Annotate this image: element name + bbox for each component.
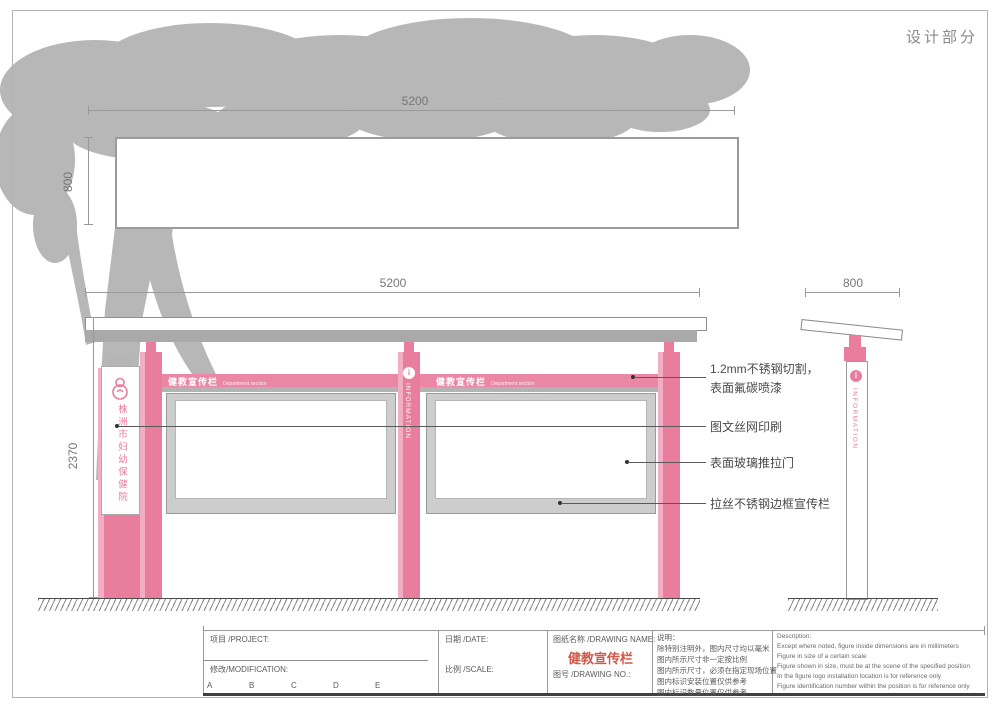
dimension-label-side-width: 800 (823, 276, 883, 290)
revision-letter-e: E (375, 681, 380, 690)
board-header-strip-1 (162, 387, 398, 392)
board-header-strip-2 (420, 387, 658, 392)
scale-label: 比例 /SCALE: (445, 664, 494, 675)
modification-rule (203, 660, 428, 661)
callout-glass-door: 表面玻璃推拉门 (710, 454, 794, 473)
banner-board (115, 137, 739, 229)
dimension-line-front-height (93, 317, 94, 598)
drawing-name-label: 图纸名称 /DRAWING NAME: (553, 634, 655, 645)
display-panel-glass-1 (175, 400, 387, 499)
support-column-left (140, 352, 162, 598)
revision-letter-d: D (333, 681, 339, 690)
board-header-title-2: 健教宣传栏 (436, 377, 486, 387)
dimension-line-banner-width (88, 110, 735, 111)
roof-gray-band (85, 330, 697, 342)
titleblock-divider-3 (547, 630, 548, 693)
revision-letter-b: B (249, 681, 254, 690)
callout-silk-print: 图文丝网印刷 (710, 418, 782, 437)
design-drawing-sheet: 设计部分 5200 800 5200 2370 (0, 0, 1000, 707)
titleblock-bottom-rule (203, 693, 985, 696)
dimension-label-front-width: 5200 (363, 276, 423, 290)
support-column-right (658, 352, 680, 598)
titleblock-divider-2 (438, 630, 439, 693)
revision-letter-c: C (291, 681, 297, 690)
ground-hatch-front (38, 598, 700, 611)
dimension-label-banner-width: 5200 (385, 94, 445, 108)
date-label: 日期 /DATE: (445, 634, 488, 645)
project-label: 项目 /PROJECT: (210, 634, 269, 645)
drawing-no-label: 图号 /DRAWING NO.: (553, 669, 630, 680)
roof-top-band (85, 317, 707, 331)
display-panel-glass-2 (435, 400, 647, 499)
hospital-logo-icon (108, 376, 132, 402)
board-header-bar-1: 健教宣传栏Department section (162, 374, 398, 387)
callout-steel-frame: 拉丝不锈钢边框宣传栏 (710, 495, 830, 514)
notes-english: Description: Except where noted, figure … (777, 632, 970, 692)
dimension-label-banner-height: 800 (61, 162, 75, 202)
notes-chinese: 说明： 除特别注明外，图内尺寸均以毫米 图内所示尺寸非一定按比例 图内所示尺寸，… (657, 632, 777, 698)
modification-label: 修改/MODIFICATION: (210, 664, 288, 675)
info-icon-side: i (850, 370, 862, 382)
drawing-name-value: 健教宣传栏 (553, 648, 648, 667)
dimension-label-front-height: 2370 (66, 433, 80, 479)
board-header-title-1: 健教宣传栏 (168, 377, 218, 387)
information-vertical-label-side: INFORMATION (851, 388, 858, 558)
dimension-line-side-width (805, 292, 900, 293)
info-icon: i (403, 367, 415, 379)
titleblock-top-rule (203, 630, 985, 631)
side-column-cap (844, 347, 866, 361)
callout-leader-glass-door (628, 462, 706, 463)
hospital-name-vertical-label: 株洲市妇幼保健院 (114, 404, 128, 510)
dimension-line-front-width (85, 292, 700, 293)
callout-leader-silk-print (118, 426, 706, 427)
revision-letter-a: A (207, 681, 212, 690)
sheet-section-title: 设计部分 (906, 26, 978, 47)
callout-leader-steel-frame (561, 503, 706, 504)
dimension-line-banner-height (88, 137, 89, 225)
callout-steel-cut: 1.2mm不锈钢切割， 表面氟碳喷漆 (710, 360, 819, 398)
information-vertical-label: INFORMATION (404, 383, 411, 463)
titleblock-divider-1 (203, 630, 204, 693)
ground-hatch-side (788, 598, 938, 611)
callout-leader-steel-cut (634, 377, 706, 378)
board-header-bar-2: 健教宣传栏Department section (420, 374, 658, 387)
